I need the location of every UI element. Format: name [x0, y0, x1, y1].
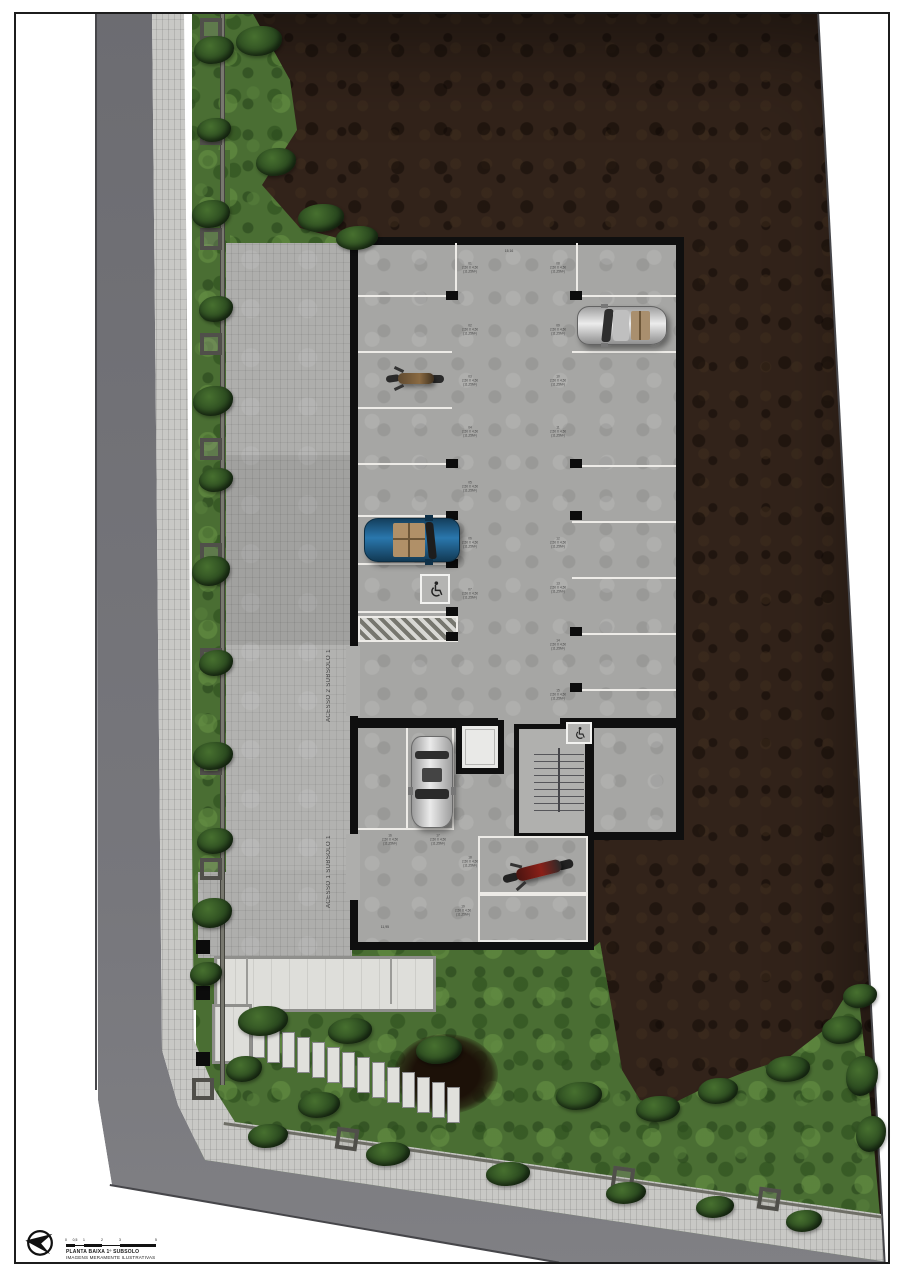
- stepping-stone: [282, 1032, 295, 1068]
- stall-line: [455, 243, 457, 295]
- stepping-stone: [432, 1082, 445, 1118]
- stall-label: 12 2,50 X 4,50 (11,25M²): [550, 537, 566, 549]
- stall-label: 06 2,50 X 4,50 (11,25M²): [462, 537, 478, 549]
- car-roof: [613, 310, 629, 341]
- wall-pillar: [200, 438, 222, 460]
- scale-segment: [84, 1244, 102, 1247]
- column-block: [446, 632, 458, 641]
- motorcycle-brown: [386, 366, 444, 392]
- stall-label: 09 2,50 X 4,50 (11,25M²): [550, 324, 566, 336]
- car-mirror: [408, 787, 413, 794]
- stall-label: 19 2,50 X 4,50 (11,25M²): [455, 905, 471, 917]
- column-block: [570, 459, 582, 468]
- car-mirror: [425, 559, 433, 564]
- stall-label: 15 2,50 X 4,50 (11,25M²): [550, 689, 566, 701]
- access2-label: ACESSO 2 SUBSOLO 1: [326, 646, 332, 722]
- stepping-stone: [297, 1037, 310, 1073]
- garage-bottom-dimension: 11,95: [381, 924, 389, 928]
- accessible-stall-marker: [420, 574, 450, 604]
- column-block: [570, 511, 582, 520]
- stall-line: [358, 563, 452, 565]
- column-block: [446, 291, 458, 300]
- car-rear-window: [415, 751, 449, 759]
- column-block: [446, 607, 458, 616]
- stair-divider: [558, 748, 560, 812]
- car-silver: [577, 306, 667, 345]
- stall-area: (11,25M²): [550, 270, 566, 274]
- stall-line: [358, 295, 452, 297]
- stall-line: [406, 728, 408, 830]
- stall-area: (11,25M²): [462, 545, 478, 549]
- stall-area: (11,25M²): [382, 842, 398, 846]
- garage-top-dimension: 15,16: [505, 248, 514, 252]
- elevator-cab: [465, 729, 495, 765]
- stall-label: 08 2,50 X 4,50 (11,25M²): [550, 262, 566, 274]
- stepping-stone: [342, 1052, 355, 1088]
- stall-label: 03 2,50 X 4,50 (11,25M²): [462, 375, 478, 387]
- car-windshield: [415, 789, 449, 799]
- stall-line: [358, 463, 452, 465]
- stall-line: [576, 243, 578, 295]
- scale-tick: 0: [65, 1237, 67, 1241]
- floor-plan-canvas: 01 2,50 X 4,50 (11,25M²) 02 2,50 X 4,50 …: [0, 0, 904, 1280]
- moto-handlebar: [510, 863, 522, 869]
- accessible-route-marker: [566, 722, 592, 744]
- car-mirror: [601, 343, 608, 347]
- car-mirror: [601, 304, 608, 308]
- structural-column: [196, 940, 210, 954]
- stall-label: 01 2,50 X 4,50 (11,25M²): [462, 262, 478, 274]
- garage-wall-bottom: [350, 942, 594, 950]
- wall-pillar: [200, 228, 222, 250]
- scale-tick: 5: [155, 1237, 157, 1241]
- stepping-stone: [447, 1087, 460, 1123]
- stall-line: [572, 577, 676, 579]
- stall-area: (11,25M²): [462, 332, 478, 336]
- stall-area: (11,25M²): [462, 434, 478, 438]
- stall-area: (11,25M²): [462, 864, 478, 868]
- garage-wall-right: [676, 237, 684, 840]
- car-seat-split: [393, 538, 425, 540]
- moto-stall: [478, 894, 588, 942]
- scale-tick: 1: [83, 1237, 85, 1241]
- wheelchair-icon: [426, 580, 444, 598]
- stall-area: (11,25M²): [462, 489, 478, 493]
- stall-label: 11 2,50 X 4,50 (11,25M²): [550, 426, 566, 438]
- car-mirror: [425, 515, 433, 520]
- stall-line: [358, 611, 452, 613]
- walkway-joint: [246, 958, 248, 1004]
- stall-area: (11,25M²): [462, 383, 478, 387]
- stall-label: 04 2,50 X 4,50 (11,25M²): [462, 426, 478, 438]
- stall-area: (11,25M²): [550, 590, 566, 594]
- driveway-band: [226, 455, 352, 645]
- stall-area: (11,25M²): [550, 383, 566, 387]
- stall-line: [572, 465, 676, 467]
- wall-pillar: [200, 858, 222, 880]
- stepping-stone: [312, 1042, 325, 1078]
- stall-label: 18 2,50 X 4,50 (11,25M²): [462, 856, 478, 868]
- column-block: [570, 627, 582, 636]
- wheelchair-icon: [572, 726, 586, 740]
- stall-area: (11,25M²): [462, 270, 478, 274]
- stall-line: [572, 295, 676, 297]
- stall-label: 14 2,50 X 4,50 (11,25M²): [550, 639, 566, 651]
- stall-area: (11,25M²): [550, 647, 566, 651]
- stall-area: (11,25M²): [550, 545, 566, 549]
- car-sunroof: [422, 768, 443, 782]
- car-blue: [364, 518, 460, 562]
- elevator-shaft: [456, 720, 504, 774]
- stall-label: 02 2,50 X 4,50 (11,25M²): [462, 324, 478, 336]
- stepping-stone: [402, 1072, 415, 1108]
- site-boundary-left: [95, 12, 97, 1090]
- stall-area: (11,25M²): [462, 596, 478, 600]
- stall-label: 17 2,50 X 4,50 (11,25M²): [430, 834, 446, 846]
- structural-column: [196, 1052, 210, 1066]
- car-windshield: [425, 522, 437, 559]
- stall-line: [572, 521, 676, 523]
- walkway-joint: [390, 958, 392, 1004]
- access1-label: ACESSO 1 SUBSOLO 1: [326, 832, 332, 908]
- moto-body: [515, 858, 563, 882]
- stall-line: [572, 351, 676, 353]
- scale-tick: 0,5: [73, 1237, 78, 1241]
- stepping-stone: [417, 1077, 430, 1113]
- car-white: [411, 736, 453, 828]
- stall-label: 05 2,50 X 4,50 (11,25M²): [462, 481, 478, 493]
- plan-disclaimer: IMAGENS MERAMENTE ILUSTRATIVAS: [66, 1255, 155, 1260]
- stall-label: 07 2,50 X 4,50 (11,25M²): [462, 588, 478, 600]
- wall-pillar: [335, 1127, 360, 1152]
- column-block: [570, 291, 582, 300]
- stall-label: 16 2,50 X 4,50 (11,25M²): [382, 834, 398, 846]
- stall-line: [572, 633, 676, 635]
- stall-line: [358, 407, 452, 409]
- wall-pillar: [200, 333, 222, 355]
- stall-line: [358, 351, 452, 353]
- stepping-stone: [327, 1047, 340, 1083]
- scale-segment: [120, 1244, 156, 1247]
- column-block: [446, 459, 458, 468]
- moto-handlebar: [394, 384, 404, 391]
- access1-doorway: [350, 836, 358, 898]
- stall-area: (11,25M²): [455, 913, 471, 917]
- stall-label: 10 2,50 X 4,50 (11,25M²): [550, 375, 566, 387]
- north-arrow-icon: [22, 1226, 58, 1262]
- moto-handlebar: [394, 366, 404, 373]
- driveway-band: [226, 645, 352, 870]
- column-block: [570, 683, 582, 692]
- scale-tick: 3: [119, 1237, 121, 1241]
- scale-segment: [66, 1244, 75, 1247]
- stepping-stone: [372, 1062, 385, 1098]
- stall-area: (11,25M²): [550, 332, 566, 336]
- retaining-wall: [220, 940, 225, 1085]
- car-mirror: [451, 787, 456, 794]
- stall-line: [358, 828, 454, 830]
- stepping-stone: [387, 1067, 400, 1103]
- garage-wall-right-room-bottom: [586, 832, 684, 840]
- stall-line: [572, 689, 676, 691]
- hatched-area: [358, 616, 458, 642]
- moto-body: [398, 373, 434, 384]
- scale-tick: 2: [101, 1237, 103, 1241]
- structural-column: [196, 986, 210, 1000]
- stall-line: [358, 515, 452, 517]
- garage-floor-right-room: [594, 728, 676, 832]
- wall-pillar: [757, 1187, 782, 1212]
- stepping-stone: [357, 1057, 370, 1093]
- stall-area: (11,25M²): [430, 842, 446, 846]
- car-windshield: [601, 309, 613, 342]
- stall-area: (11,25M²): [550, 434, 566, 438]
- car-seat-split: [639, 311, 641, 341]
- wall-pillar: [192, 1078, 214, 1100]
- garage-wall-top: [350, 237, 684, 245]
- moto-handlebar: [516, 881, 527, 891]
- access2-doorway: [350, 648, 358, 714]
- stall-label: 13 2,50 X 4,50 (11,25M²): [550, 582, 566, 594]
- stall-area: (11,25M²): [550, 697, 566, 701]
- north-arrow: [22, 1226, 58, 1262]
